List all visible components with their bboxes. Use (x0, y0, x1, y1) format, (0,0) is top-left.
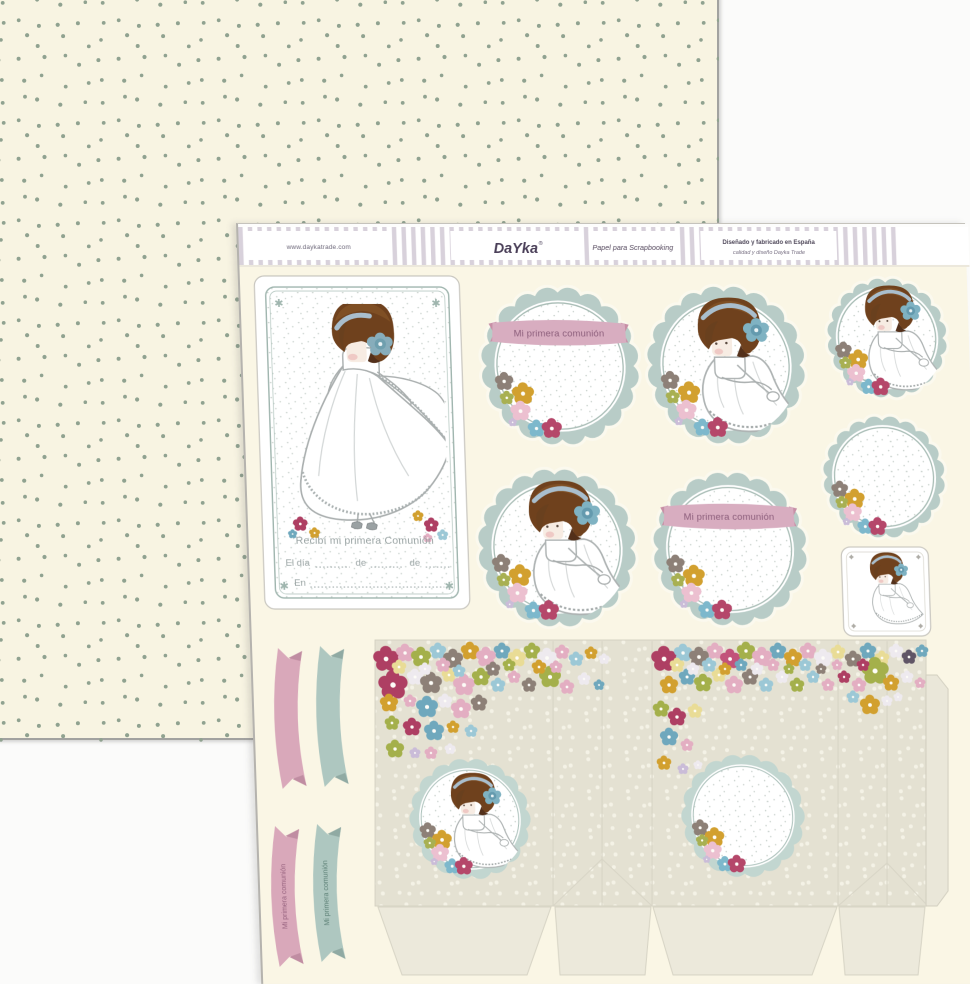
svg-text:Papel para Scrapbooking: Papel para Scrapbooking (592, 243, 673, 252)
svg-text:Diseñado y fabricado en España: Diseñado y fabricado en España (722, 240, 815, 246)
svg-text:calidad y diseño Dayka Trade: calidad y diseño Dayka Trade (733, 250, 805, 256)
svg-text:de: de (355, 558, 366, 569)
svg-text:✱: ✱ (274, 298, 284, 310)
svg-text:✱: ✱ (431, 298, 441, 310)
svg-text:DaYka: DaYka (493, 241, 538, 257)
svg-text:En: En (294, 578, 306, 589)
svg-text:El día: El día (285, 558, 310, 569)
svg-text:Mi primera comunión: Mi primera comunión (513, 328, 604, 339)
svg-text:✱: ✱ (445, 581, 455, 593)
svg-text:de: de (409, 558, 420, 569)
svg-text:Recibí mi primera Comunión: Recibí mi primera Comunión (296, 535, 435, 547)
svg-text:Mi primera comunión: Mi primera comunión (683, 512, 774, 523)
svg-text:www.daykatrade.com: www.daykatrade.com (286, 244, 352, 251)
svg-text:®: ® (539, 240, 543, 247)
svg-text:✱: ✱ (280, 581, 290, 593)
